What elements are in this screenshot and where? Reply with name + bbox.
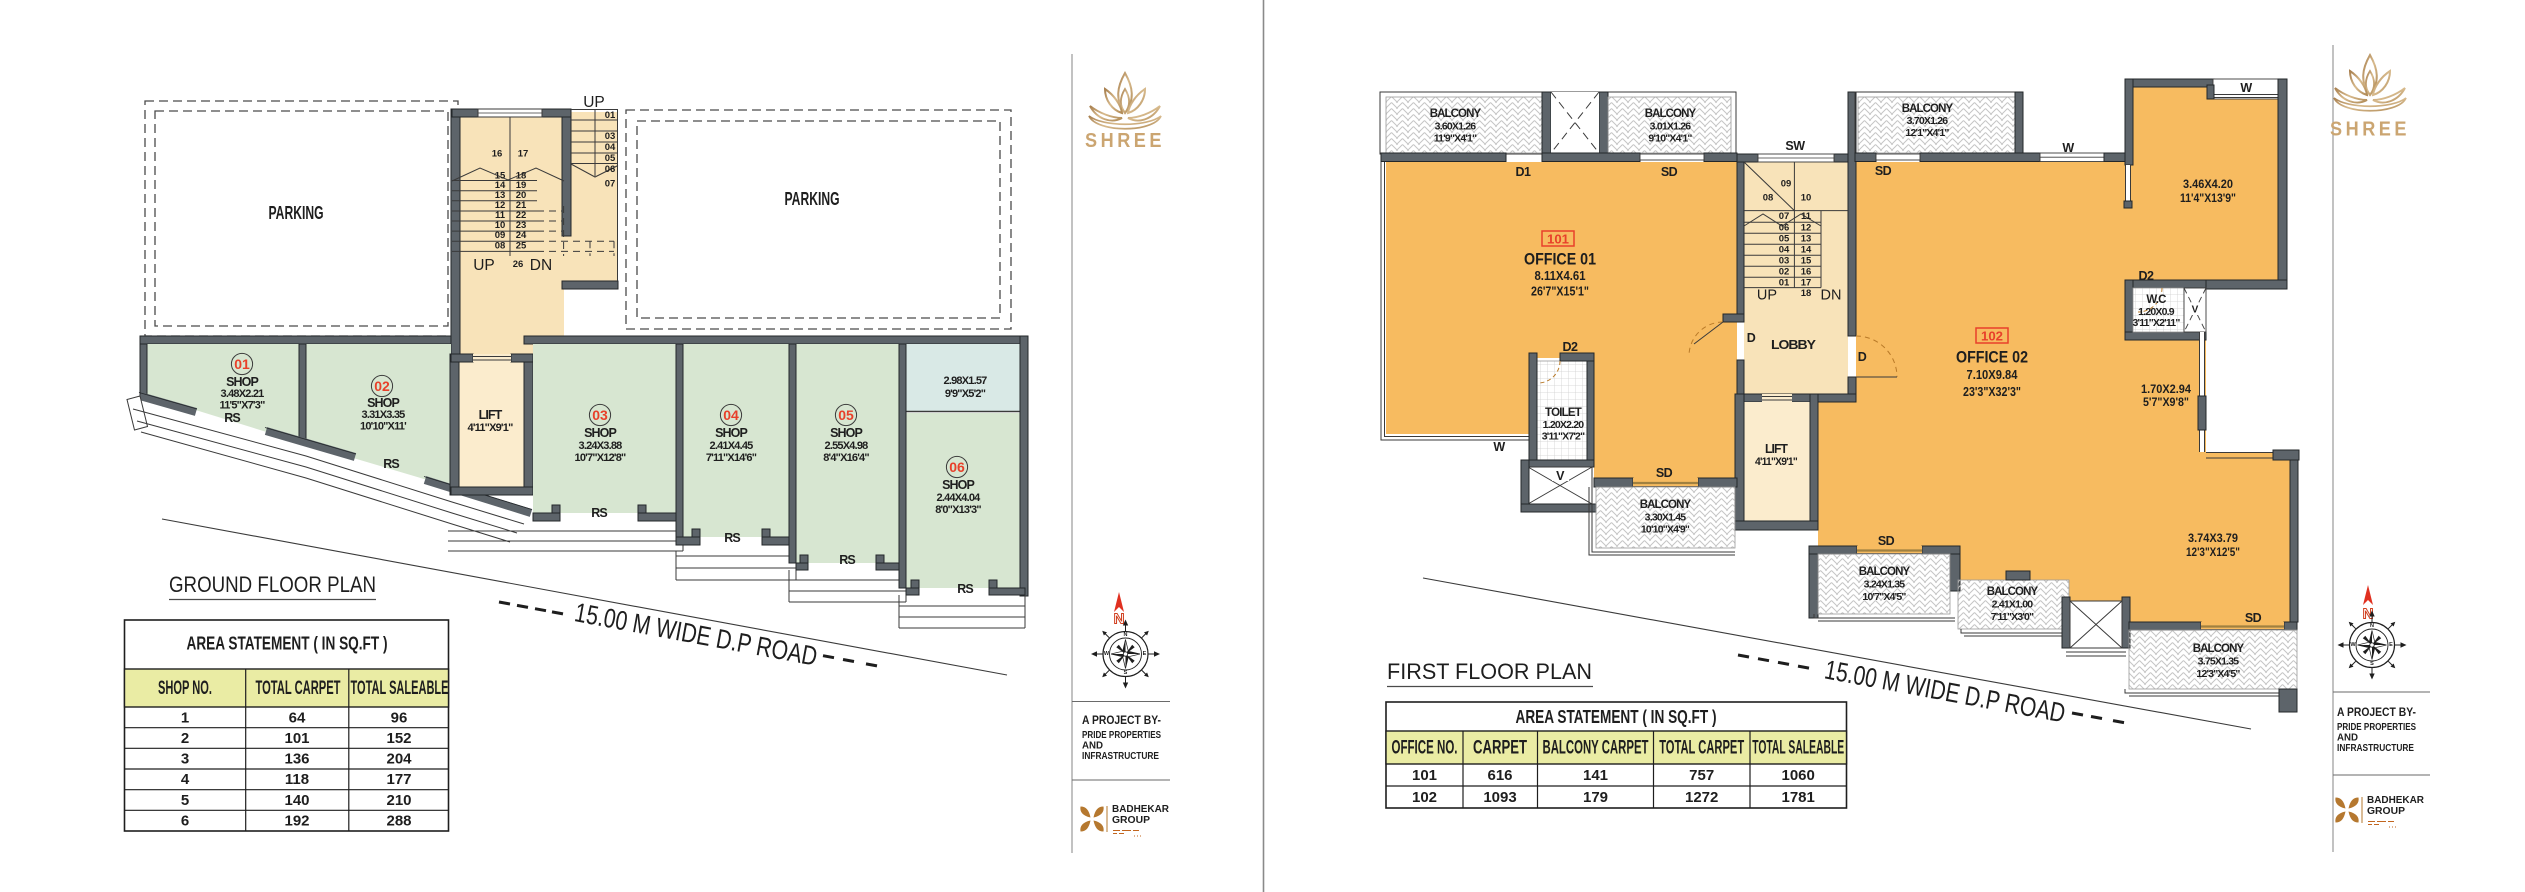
svg-text:1781: 1781	[1782, 789, 1815, 806]
svg-text:AND: AND	[2337, 733, 2358, 744]
svg-text:09: 09	[1781, 179, 1792, 190]
svg-text:06: 06	[1779, 223, 1790, 234]
svg-text:08: 08	[1763, 193, 1774, 204]
svg-text:LIFT: LIFT	[1765, 442, 1788, 456]
svg-text:UP: UP	[583, 94, 605, 111]
svg-text:11: 11	[1801, 211, 1812, 222]
svg-text:2.55X4.98: 2.55X4.98	[825, 440, 869, 452]
svg-text:16: 16	[492, 149, 503, 160]
svg-text:01: 01	[1779, 278, 1790, 289]
svg-text:3.24X3.88: 3.24X3.88	[579, 440, 623, 452]
svg-text:SW: SW	[1785, 139, 1805, 153]
svg-text:1.70X2.94: 1.70X2.94	[2141, 382, 2191, 396]
svg-text:W: W	[2240, 81, 2252, 95]
svg-text:118: 118	[285, 771, 309, 788]
svg-text:BALCONY: BALCONY	[2193, 643, 2245, 655]
svg-text:RS: RS	[383, 457, 399, 471]
svg-text:17: 17	[1801, 278, 1812, 289]
svg-text:1: 1	[181, 710, 189, 727]
svg-text:BALCONY: BALCONY	[1902, 103, 1954, 115]
svg-text:3.31X3.35: 3.31X3.35	[362, 409, 406, 421]
svg-text:RS: RS	[591, 506, 607, 520]
svg-text:7.10X9.84: 7.10X9.84	[1967, 368, 2018, 382]
svg-text:D2: D2	[2139, 269, 2155, 283]
svg-text:TOTAL CARPET: TOTAL CARPET	[256, 678, 341, 699]
svg-text:05: 05	[838, 407, 854, 423]
svg-text:OFFICE 01: OFFICE 01	[1524, 250, 1596, 269]
svg-text:4: 4	[181, 771, 190, 788]
svg-text:140: 140	[284, 792, 309, 809]
svg-text:01: 01	[234, 356, 250, 372]
svg-text:GROUND FLOOR PLAN: GROUND FLOOR PLAN	[169, 572, 376, 597]
svg-text:03: 03	[605, 131, 616, 142]
svg-text:1093: 1093	[1483, 789, 1516, 806]
svg-text:192: 192	[284, 813, 309, 830]
svg-text:4'11"X9'1": 4'11"X9'1"	[468, 422, 514, 434]
svg-text:17: 17	[518, 149, 529, 160]
svg-text:101: 101	[1412, 767, 1437, 784]
svg-text:N: N	[1114, 611, 1125, 628]
svg-text:AREA STATEMENT ( IN SQ.FT ): AREA STATEMENT ( IN SQ.FT )	[1516, 706, 1717, 727]
svg-text:5'7"X9'8": 5'7"X9'8"	[2143, 395, 2189, 409]
svg-text:14: 14	[1801, 245, 1812, 256]
svg-text:3.46X4.20: 3.46X4.20	[2183, 177, 2233, 191]
svg-text:8'4"X16'4": 8'4"X16'4"	[823, 452, 869, 464]
svg-text:D: D	[1858, 350, 1867, 364]
svg-text:A PROJECT BY-: A PROJECT BY-	[1082, 715, 1161, 727]
svg-text:D: D	[1747, 331, 1756, 345]
svg-text:RS: RS	[224, 411, 240, 425]
svg-text:SHOP: SHOP	[830, 426, 862, 440]
svg-text:D2: D2	[1563, 340, 1579, 354]
svg-text:3.60X1.26: 3.60X1.26	[1435, 121, 1477, 133]
svg-text:1.20X2.20: 1.20X2.20	[1543, 419, 1585, 431]
svg-text:2.44X4.04: 2.44X4.04	[937, 492, 982, 504]
svg-text:16: 16	[1801, 267, 1812, 278]
svg-text:10'10"X11': 10'10"X11'	[360, 421, 407, 433]
svg-text:INFRASTRUCTURE: INFRASTRUCTURE	[2337, 743, 2414, 754]
svg-text:18: 18	[1801, 288, 1812, 299]
svg-text:SHREE: SHREE	[2330, 118, 2410, 141]
svg-text:3.48X2.21: 3.48X2.21	[221, 388, 265, 400]
svg-text:141: 141	[1583, 767, 1608, 784]
svg-text:23'3"X32'3": 23'3"X32'3"	[1963, 385, 2021, 399]
svg-text:LIFT: LIFT	[479, 408, 503, 422]
svg-text:3.30X1.45: 3.30X1.45	[1645, 512, 1687, 524]
svg-text:9'9"X5'2": 9'9"X5'2"	[945, 388, 986, 400]
svg-text:11'4"X13'9": 11'4"X13'9"	[2180, 191, 2236, 205]
svg-text:01: 01	[605, 110, 616, 121]
svg-text:2.41X4.45: 2.41X4.45	[710, 440, 754, 452]
svg-text:757: 757	[1689, 767, 1714, 784]
svg-text:3: 3	[181, 751, 189, 768]
svg-text:15: 15	[1801, 256, 1812, 267]
svg-text:08: 08	[495, 240, 506, 251]
svg-text:7'11"X3'0": 7'11"X3'0"	[1991, 611, 2034, 623]
svg-text:02: 02	[374, 378, 390, 394]
svg-text:FIRST FLOOR PLAN: FIRST FLOOR PLAN	[1387, 659, 1592, 684]
svg-text:2.98X1.57: 2.98X1.57	[944, 375, 988, 387]
svg-text:SHOP: SHOP	[367, 396, 399, 410]
svg-text:177: 177	[386, 771, 411, 788]
svg-text:BALCONY: BALCONY	[1640, 499, 1692, 511]
svg-text:PRIDE PROPERTIES: PRIDE PROPERTIES	[2337, 722, 2416, 733]
svg-text:6: 6	[181, 813, 189, 830]
svg-text:SHOP: SHOP	[715, 426, 747, 440]
svg-text:PARKING: PARKING	[269, 203, 324, 223]
svg-text:07: 07	[1779, 211, 1790, 222]
svg-text:210: 210	[386, 792, 411, 809]
svg-text:PRIDE PROPERTIES: PRIDE PROPERTIES	[1082, 730, 1161, 741]
svg-text:2.41X1.00: 2.41X1.00	[1992, 599, 2034, 611]
svg-text:AREA STATEMENT ( IN SQ.FT ): AREA STATEMENT ( IN SQ.FT )	[187, 633, 388, 654]
svg-text:RS: RS	[724, 531, 740, 545]
svg-text:UP: UP	[1757, 288, 1777, 304]
svg-text:96: 96	[391, 710, 408, 727]
svg-text:SD: SD	[1661, 165, 1678, 179]
svg-text:25: 25	[516, 240, 527, 251]
svg-text:06: 06	[605, 164, 616, 175]
svg-text:RS: RS	[957, 582, 973, 596]
svg-text:64: 64	[289, 710, 306, 727]
svg-text:05: 05	[605, 153, 616, 164]
svg-text:SD: SD	[1875, 164, 1892, 178]
svg-text:03: 03	[1779, 256, 1790, 267]
svg-text:BALCONY: BALCONY	[1430, 108, 1482, 120]
svg-text:W: W	[1493, 440, 1505, 454]
svg-text:136: 136	[284, 751, 309, 768]
svg-text:101: 101	[284, 730, 309, 747]
svg-text:2: 2	[181, 730, 189, 747]
svg-text:04: 04	[605, 142, 616, 153]
svg-text:12'1"X4'1": 12'1"X4'1"	[1905, 127, 1949, 139]
svg-text:4'11"X9'1": 4'11"X9'1"	[1755, 456, 1798, 468]
svg-text:9'10"X4'1": 9'10"X4'1"	[1648, 133, 1692, 145]
svg-text:12: 12	[1801, 223, 1812, 234]
svg-text:11'9"X4'1": 11'9"X4'1"	[1434, 133, 1477, 145]
svg-text:V: V	[2192, 305, 2199, 316]
svg-text:3.70X1.26: 3.70X1.26	[1907, 115, 1949, 127]
svg-text:OFFICE NO.: OFFICE NO.	[1392, 738, 1458, 759]
svg-text:BALCONY: BALCONY	[1987, 586, 2039, 598]
svg-text:03: 03	[592, 407, 608, 423]
svg-text:10'10"X4'9": 10'10"X4'9"	[1641, 524, 1690, 536]
svg-text:7'11"X14'6": 7'11"X14'6"	[706, 452, 757, 464]
svg-text:204: 204	[386, 751, 412, 768]
svg-text:BALCONY CARPET: BALCONY CARPET	[1543, 738, 1649, 759]
svg-text:05: 05	[1779, 234, 1790, 245]
svg-text:GROUP: GROUP	[2367, 805, 2405, 817]
svg-text:616: 616	[1487, 767, 1512, 784]
svg-text:A PROJECT BY-: A PROJECT BY-	[2337, 707, 2416, 719]
svg-text:V: V	[1556, 469, 1565, 483]
svg-text:3'11"X7'2": 3'11"X7'2"	[1542, 431, 1585, 443]
svg-text:06: 06	[949, 459, 965, 475]
svg-text:102: 102	[1412, 789, 1437, 806]
svg-text:5: 5	[181, 792, 189, 809]
svg-text:288: 288	[386, 813, 411, 830]
svg-text:UP: UP	[473, 257, 495, 274]
svg-text:PARKING: PARKING	[785, 189, 840, 209]
svg-text:8.11X4.61: 8.11X4.61	[1535, 269, 1586, 283]
svg-text:TOILET: TOILET	[1545, 407, 1582, 419]
svg-text:3.01X1.26: 3.01X1.26	[1650, 121, 1692, 133]
svg-text:13: 13	[1801, 234, 1812, 245]
svg-text:3'11"X2'11": 3'11"X2'11"	[2132, 317, 2180, 329]
svg-text:SD: SD	[1656, 466, 1673, 480]
svg-text:3.74X3.79: 3.74X3.79	[2188, 531, 2238, 545]
svg-text:SHOP: SHOP	[942, 478, 974, 492]
svg-text:BALCONY: BALCONY	[1645, 108, 1697, 120]
svg-text:INFRASTRUCTURE: INFRASTRUCTURE	[1082, 751, 1159, 762]
svg-text:CARPET: CARPET	[1473, 738, 1527, 759]
svg-text:10: 10	[1801, 193, 1812, 204]
svg-text:GROUP: GROUP	[1112, 814, 1150, 826]
svg-text:26'7"X15'1": 26'7"X15'1"	[1531, 285, 1589, 299]
svg-text:12'3"X4'5": 12'3"X4'5"	[2196, 668, 2240, 680]
svg-text:26: 26	[513, 259, 524, 270]
svg-text:04: 04	[723, 407, 739, 423]
svg-text:152: 152	[386, 730, 411, 747]
svg-text:AND: AND	[1082, 741, 1103, 752]
svg-text:101: 101	[1547, 232, 1569, 247]
svg-text:TOTAL CARPET: TOTAL CARPET	[1659, 738, 1744, 759]
svg-text:TOTAL SALEABLE: TOTAL SALEABLE	[1752, 738, 1844, 759]
svg-text:SHREE: SHREE	[1085, 129, 1165, 152]
svg-text:SD: SD	[1878, 534, 1895, 548]
svg-text:D1: D1	[1516, 165, 1532, 179]
svg-text:12'3"X12'5": 12'3"X12'5"	[2186, 545, 2240, 559]
svg-text:W.C: W.C	[2146, 294, 2166, 306]
svg-text:DN: DN	[530, 257, 552, 274]
svg-text:11'5"X7'3": 11'5"X7'3"	[220, 400, 266, 412]
svg-text:3.24X1.35: 3.24X1.35	[1864, 579, 1906, 591]
svg-text:OFFICE 02: OFFICE 02	[1956, 348, 2028, 367]
svg-text:SHOP NO.: SHOP NO.	[158, 678, 212, 699]
svg-text:TOTAL SALEABLE: TOTAL SALEABLE	[351, 678, 449, 699]
svg-text:8'0"X13'3": 8'0"X13'3"	[935, 504, 981, 516]
svg-text:BALCONY: BALCONY	[1859, 566, 1911, 578]
svg-text:102: 102	[1981, 329, 2003, 344]
svg-text:LOBBY: LOBBY	[1771, 338, 1817, 352]
svg-text:10'7"X12'8": 10'7"X12'8"	[575, 452, 626, 464]
svg-text:RS: RS	[839, 553, 855, 567]
svg-text:1060: 1060	[1782, 767, 1815, 784]
svg-text:SD: SD	[2245, 611, 2262, 625]
svg-text:07: 07	[605, 179, 616, 190]
svg-text:10'7"X4'5": 10'7"X4'5"	[1862, 591, 1906, 603]
svg-text:179: 179	[1583, 789, 1608, 806]
svg-text:04: 04	[1779, 245, 1790, 256]
svg-text:W: W	[2062, 141, 2074, 155]
svg-text:SHOP: SHOP	[226, 375, 258, 389]
svg-text:SHOP: SHOP	[584, 426, 616, 440]
svg-text:1272: 1272	[1685, 789, 1718, 806]
svg-text:02: 02	[1779, 267, 1790, 278]
svg-text:DN: DN	[1821, 288, 1842, 304]
svg-text:3.75X1.35: 3.75X1.35	[2198, 656, 2240, 668]
